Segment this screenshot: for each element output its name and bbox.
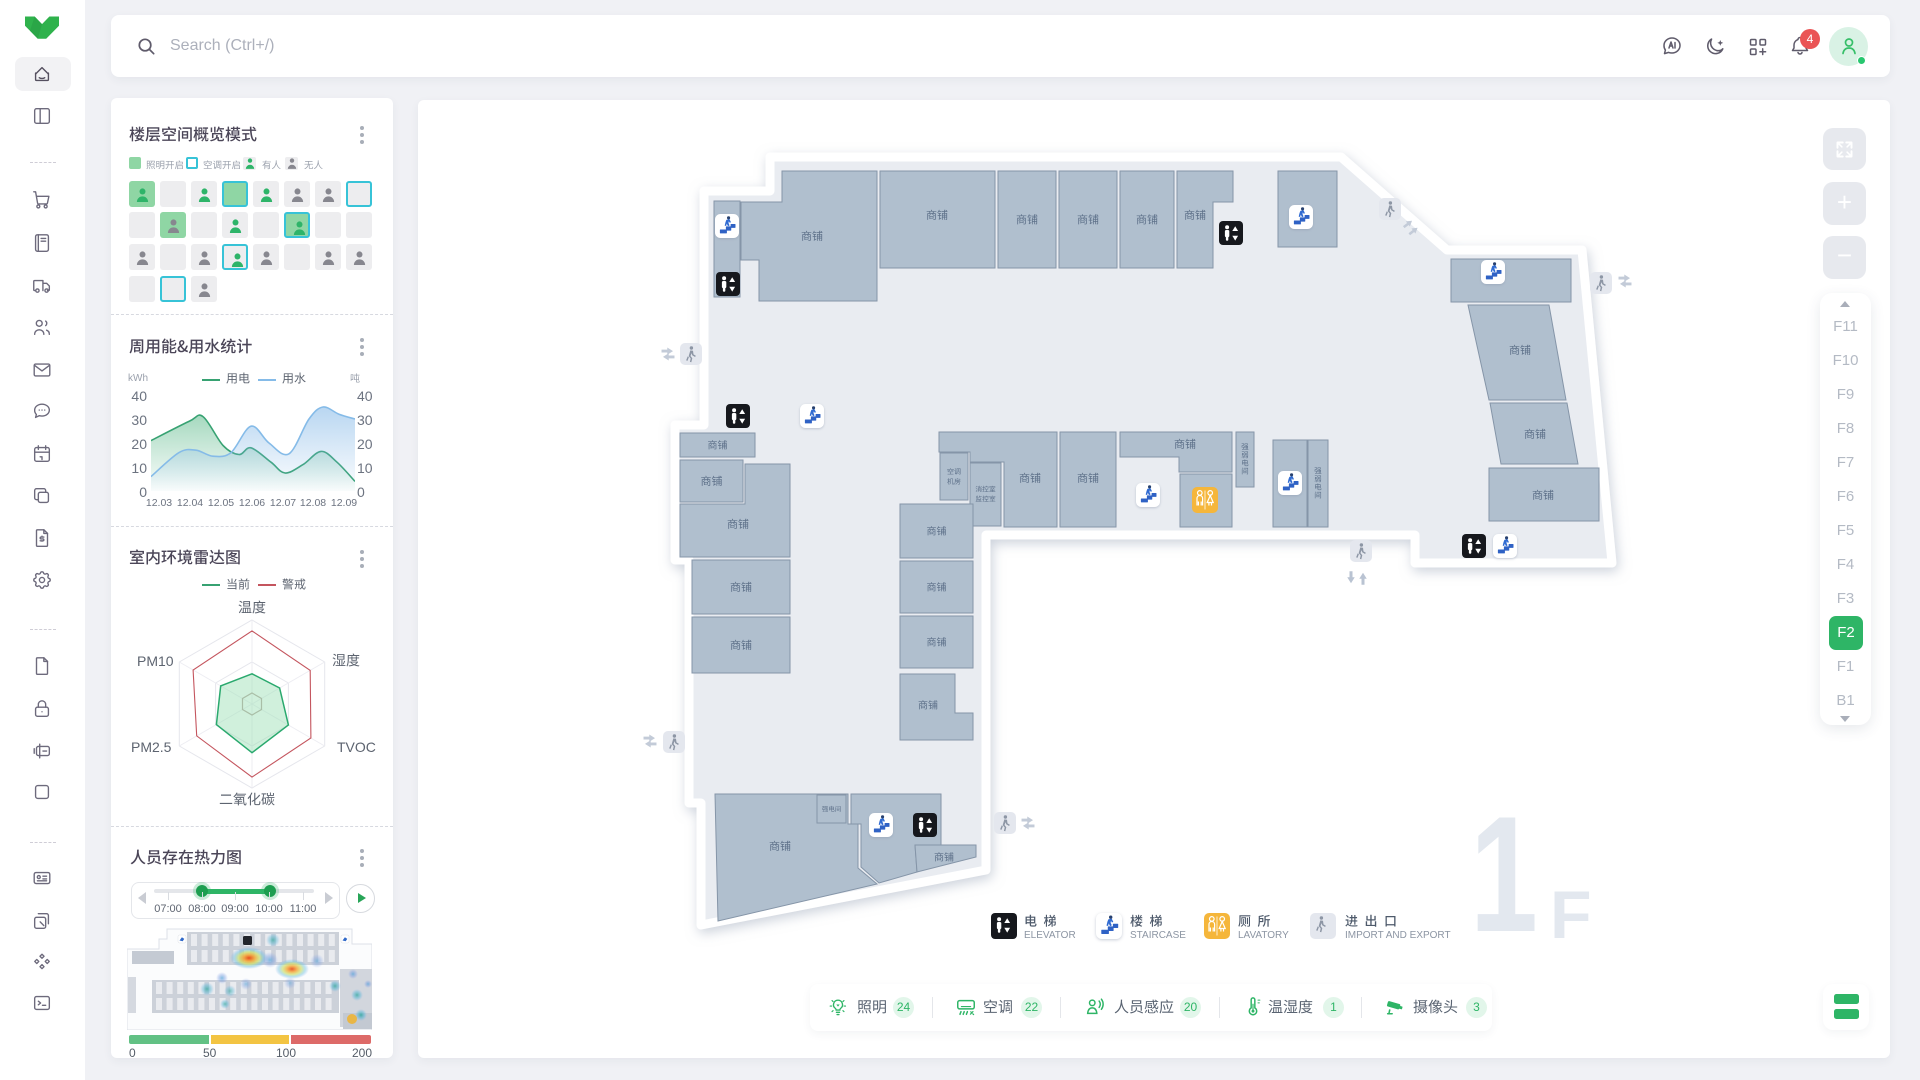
svg-text:IMPORT AND EXPORT: IMPORT AND EXPORT	[1345, 930, 1451, 941]
svg-text:STAIRCASE: STAIRCASE	[1130, 930, 1186, 941]
svg-text:LAVATORY: LAVATORY	[1238, 930, 1289, 941]
svg-text:ELEVATOR: ELEVATOR	[1024, 930, 1076, 941]
